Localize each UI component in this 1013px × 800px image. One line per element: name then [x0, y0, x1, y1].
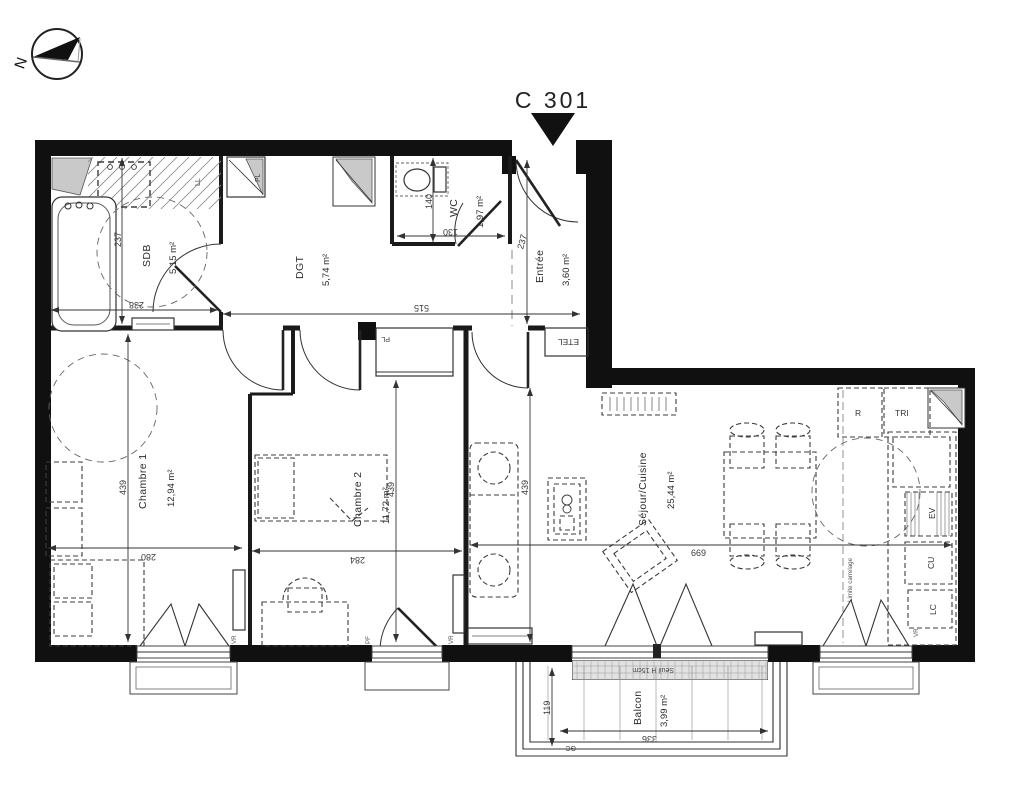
floorplan-drawing: N C 301: [0, 0, 1013, 800]
railing-label: GC: [566, 744, 577, 751]
dining-table: [724, 452, 816, 538]
bathtub: [52, 197, 116, 331]
cooktop-label: CU: [926, 557, 936, 569]
washer-label: LL: [195, 178, 202, 186]
dim-sejour-width: 669: [691, 548, 706, 558]
wc-name: WC: [448, 199, 460, 217]
toilet: [404, 169, 430, 191]
armchair: [603, 519, 678, 592]
wc-area: 1,97 m²: [475, 196, 486, 228]
tile-limit-label: Limite carrelage: [847, 557, 854, 602]
sejour-casement-icon: [823, 600, 866, 646]
sejour-door: [472, 332, 528, 388]
chambre2-shutter-label: VR: [448, 635, 455, 644]
balcony-door-casement-icon: [605, 584, 657, 646]
dim-sejour-height: 439: [520, 480, 530, 495]
sejour-area: 25,44 m²: [666, 472, 677, 510]
dim-sdb-width: 238: [129, 300, 144, 310]
sejour-radiator: [602, 393, 676, 415]
sejour-name: Séjour/Cuisine: [637, 452, 649, 526]
sdb-area: 5,15 m²: [168, 242, 179, 274]
closet-top-label: PL: [255, 173, 262, 182]
chambre1-door: [223, 330, 283, 390]
dgt-name: DGT: [294, 255, 306, 279]
sdb-window: [52, 158, 92, 195]
dim-corridor: 515: [414, 303, 429, 313]
sdb-name: SDB: [141, 244, 153, 267]
closet-hall-label: PL: [381, 335, 390, 342]
entree-name: Entrée: [534, 250, 546, 283]
dim-chambre1-height: 439: [118, 480, 128, 495]
north-compass: N: [11, 29, 82, 79]
waste-label: TRI: [895, 408, 909, 418]
dim-chambre1-width: 280: [141, 552, 156, 562]
interior-walls: [51, 156, 545, 645]
balcon-name: Balcon: [632, 690, 644, 725]
dim-wc-height: 140: [424, 194, 434, 209]
sejour-radiator-2: [755, 632, 802, 645]
toilet-tank: [434, 167, 446, 192]
dishwasher-label: LC: [928, 604, 938, 615]
entree-area: 3,60 m²: [561, 254, 572, 286]
unit-title: C 301: [515, 87, 591, 146]
dim-balcon-width: 336: [642, 734, 657, 744]
chambre2-radiator: [453, 575, 464, 633]
chambre1-bed: [50, 560, 144, 646]
sejour-shutter-label: VR: [913, 628, 920, 637]
chambre2-pf-label: PF: [365, 636, 372, 644]
dim-balcon-height: 119: [542, 701, 552, 715]
chambre2-area: 11,72 m²: [381, 487, 392, 524]
chambre2-frenchdoor-swing: [380, 608, 398, 650]
entrance-door: [516, 160, 578, 222]
chambre2-chair: [283, 578, 327, 600]
chambre1-area: 12,94 m²: [166, 470, 177, 508]
sejour-furniture: [468, 393, 920, 645]
floorplan-page: N C 301: [0, 0, 1013, 800]
dim-sdb-height: 237: [113, 232, 123, 247]
chambre2-bed: [255, 455, 387, 521]
etel-label: ETEL: [557, 337, 579, 347]
exterior-walls: [35, 140, 975, 662]
sejour-turning-circle: [812, 438, 920, 546]
chambre2-door: [300, 330, 360, 390]
balcon-area: 3,99 m²: [659, 695, 670, 727]
dim-wc-width: 130: [443, 227, 458, 237]
chambre1-radiator: [233, 570, 245, 630]
fridge-label: R: [855, 408, 861, 418]
chambre1-turning-circle: [49, 354, 157, 462]
chambre1-shutter-label: VR: [231, 635, 238, 644]
doors: [153, 160, 578, 650]
north-letter: N: [11, 55, 31, 71]
chambre1-name: Chambre 1: [137, 453, 149, 509]
kitchen-counter: [888, 432, 956, 645]
wc-fixtures: [396, 163, 448, 196]
dim-chambre2-width: 284: [350, 555, 365, 565]
chambre1-casement-icon: [140, 604, 185, 646]
threshold-label: Seuil H 15cm: [632, 666, 674, 673]
entrance-marker-icon: [531, 113, 575, 146]
dgt-area: 5,74 m²: [321, 254, 332, 286]
unit-label: C 301: [515, 87, 591, 113]
chambre2-desk: [262, 602, 348, 646]
sofa: [470, 443, 518, 597]
chambre2-name: Chambre 2: [352, 471, 364, 527]
sink-label: EV: [927, 507, 937, 519]
